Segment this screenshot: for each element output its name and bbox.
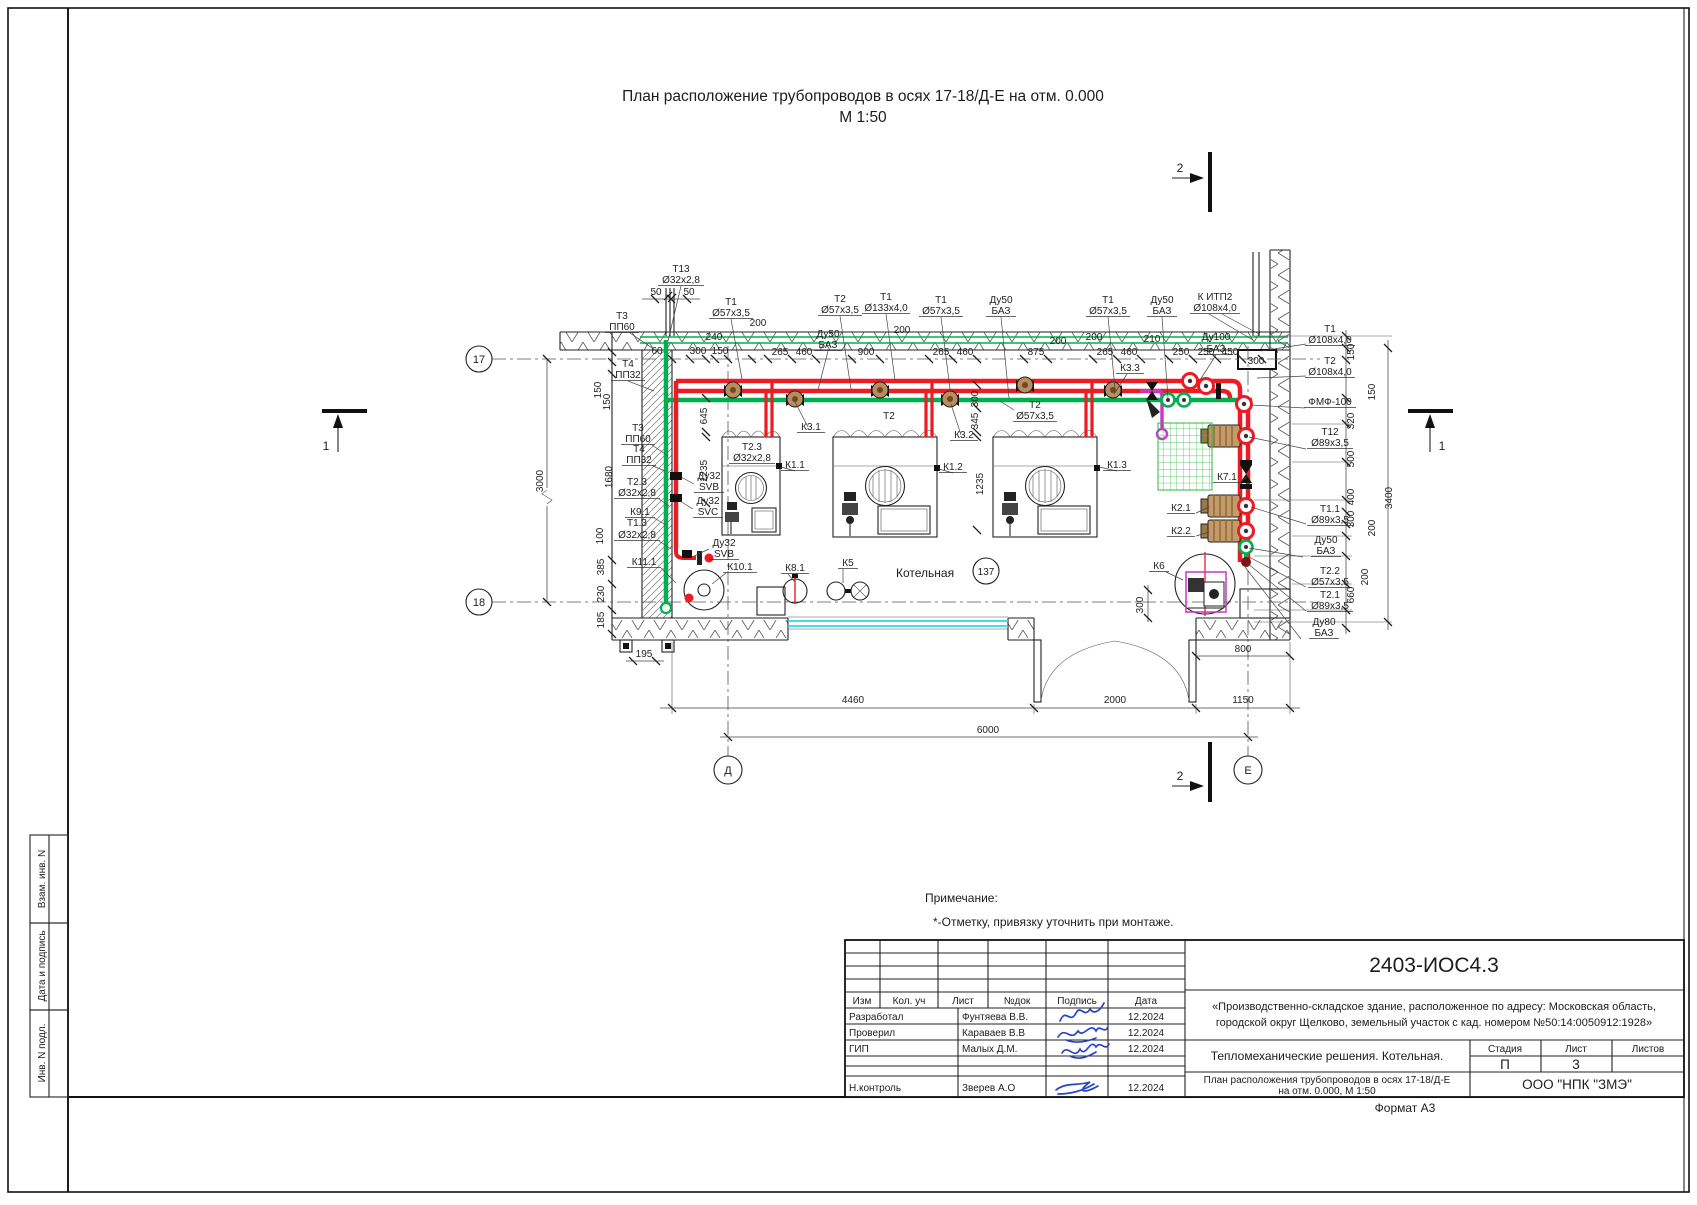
stamp-name: Караваев В.В (962, 1028, 1025, 1039)
stamp-date: 12.2024 (1128, 1028, 1165, 1039)
drawing-label: Т2 (883, 411, 895, 422)
drawing-label: Т2.3 (742, 442, 762, 453)
stamp-name: Зверев А.О (962, 1083, 1015, 1094)
drawing-label: 100 (595, 527, 606, 544)
drawing-label: Т1 (1102, 295, 1114, 306)
drawing-label: К6 (1153, 561, 1165, 572)
drawing-label: К3.2 (954, 430, 974, 441)
stamp-col: Дата (1135, 996, 1158, 1007)
drain-grate (1158, 423, 1212, 490)
drawing-label: 900 (858, 347, 875, 358)
drawing-label: К1.3 (1107, 460, 1127, 471)
drawing-label: К3.3 (1120, 363, 1140, 374)
drawing-label: Ø133х4,0 (864, 303, 908, 314)
stamp-date: 12.2024 (1128, 1044, 1165, 1055)
stamp-role: Проверил (849, 1028, 895, 1039)
stamp-col: Лист (952, 996, 974, 1007)
drawing-label: БАЗ (1153, 306, 1172, 317)
drawing-label: К2.1 (1171, 503, 1191, 514)
drawing-label: 250 (1173, 347, 1190, 358)
drawing-label: Ø108х4,0 (1193, 303, 1237, 314)
drawing-label: Т2 (1324, 356, 1336, 367)
room-number: 137 (978, 567, 995, 578)
drawing-label: 2000 (1104, 695, 1127, 706)
drawing-label: 300 (1346, 510, 1357, 527)
sidebar-label: Инв. N подл. (37, 1024, 48, 1083)
drawing-label: 1235 (699, 459, 710, 482)
stamp-name: Фунтяева В.В. (962, 1012, 1028, 1023)
drawing-label: Т1.1 (1320, 504, 1340, 515)
drawing-label: Ø89х3,5 (1311, 601, 1349, 612)
drawing-label: 320 (1346, 412, 1357, 429)
axis-bubble-17: 17 (473, 354, 485, 366)
section-label: 1 (1439, 439, 1446, 453)
drawing-label: Т2.2 (1320, 566, 1340, 577)
section-label: 2 (1177, 769, 1184, 783)
drawing-label: 300 (1248, 356, 1265, 367)
drawing-label: Т1.3 (627, 518, 647, 529)
drawing-label: 1680 (604, 465, 615, 488)
drawing-label: К10.1 (727, 562, 753, 573)
drawing-title-line2: М 1:50 (839, 109, 887, 126)
stamp-project-line1: «Производственно-складское здание, распо… (1212, 1001, 1656, 1013)
drawing-label: Ø57х3,5 (1089, 306, 1127, 317)
drawing-label: 460 (957, 347, 974, 358)
stamp-date: 12.2024 (1128, 1012, 1165, 1023)
drawing-label: 265 (1097, 347, 1114, 358)
drawing-label: SVC (698, 507, 719, 518)
drawing-label: К5 (842, 558, 854, 569)
plan-drawing: Взам. инв. N Дата и подпись Инв. N подл.… (0, 0, 1697, 1200)
drawing-label: Т4 (622, 359, 634, 370)
drawing-label: 150 (712, 346, 729, 357)
drawing-label: Ду50 (816, 329, 840, 340)
stamp-sheet-label: Лист (1565, 1044, 1587, 1055)
drawing-label: 645 (699, 407, 710, 424)
drawing-label: БАЗ (1315, 628, 1334, 639)
stamp-col: Кол. уч (893, 996, 926, 1007)
drawing-label: Ду32 (696, 496, 720, 507)
section-label: 2 (1177, 161, 1184, 175)
drawing-label: Ø57х3,5 (922, 306, 960, 317)
drawing-label: 50 (650, 287, 662, 298)
drawing-label: ФМФ-100 (1308, 397, 1352, 408)
stamp-name: Малых Д.М. (962, 1044, 1017, 1055)
stamp-date: 12.2024 (1128, 1083, 1165, 1094)
stamp-sheet-title-line2: на отм. 0.000, М 1:50 (1278, 1086, 1376, 1097)
drawing-label: Т1 (880, 292, 892, 303)
drawing-label: 265 (772, 347, 789, 358)
drawing-label: ПП32 (615, 370, 641, 381)
drawing-label: Ø32х2,8 (662, 275, 700, 286)
drawing-label: 450 (1222, 347, 1239, 358)
drawing-label: 265 (933, 347, 950, 358)
drawing-label: ПП32 (626, 455, 652, 466)
drawing-label: 200 (750, 318, 767, 329)
stamp-stage-value: П (1500, 1057, 1510, 1072)
drawing-label: Ø57х3,5 (1016, 411, 1054, 422)
drawing-label: Ø57х3,5 (1311, 577, 1349, 588)
drawing-label: К ИТП2 (1198, 292, 1233, 303)
notes-heading: Примечание: (925, 891, 998, 905)
drawing-label: Ø32х2,8 (733, 453, 771, 464)
drawing-label: Т3 (616, 311, 628, 322)
drawing-label: К9.1 (630, 507, 650, 518)
stamp-col: Подпись (1057, 996, 1097, 1007)
drawing-label: 200 (1360, 568, 1371, 585)
drawing-label: Ø32х2,8 (618, 530, 656, 541)
stamp-role: ГИП (849, 1044, 869, 1055)
drawing-label: Ø32х2,8 (618, 488, 656, 499)
drawing-label: 240 (706, 332, 723, 343)
stamp-col: №док (1004, 996, 1031, 1007)
drawing-label: 3400 (1384, 486, 1395, 509)
drawing-label: 460 (1121, 347, 1138, 358)
stamp-col: Изм (853, 996, 872, 1007)
drawing-label: 185 (596, 611, 607, 628)
drawing-label: 400 (1346, 488, 1357, 505)
drawing-label: Ø57х3,5 (712, 308, 750, 319)
drawing-label: БАЗ (819, 340, 838, 351)
drawing-label: 150 (1346, 343, 1357, 360)
drawing-label: 200 (1086, 332, 1103, 343)
drawing-label: 4460 (842, 695, 865, 706)
drawing-label: Ду50 (989, 295, 1013, 306)
drawing-label: Т2 (834, 294, 846, 305)
drawing-label: ПП60 (609, 322, 635, 333)
drawing-label: 1150 (1232, 695, 1254, 706)
drawing-label: Ø108х4,0 (1308, 367, 1352, 378)
drawing-label: К2.2 (1171, 526, 1191, 537)
drawing-label: Ø57х3,5 (821, 305, 859, 316)
drawing-label: Ду32 (712, 538, 736, 549)
drawing-label: К11.1 (632, 557, 657, 568)
drawing-label: 210 (1144, 334, 1161, 345)
drawing-label: БАЗ (992, 306, 1011, 317)
drawing-label: 300 (690, 346, 707, 357)
drawing-label: SVB (699, 482, 719, 493)
drawing-label: К7.1 (1217, 472, 1237, 483)
drawing-label: 50 (683, 287, 695, 298)
drawing-label: 6000 (977, 725, 1000, 736)
drawing-label: Т13 (672, 264, 690, 275)
stamp-role: Разработал (849, 1011, 904, 1023)
sidebar-label: Дата и подпись (37, 930, 48, 1001)
drawing-label: 875 (1028, 347, 1045, 358)
drawing-label: 345 (970, 412, 981, 429)
drawing-label: Т2.1 (1320, 590, 1340, 601)
drawing-label: 300 (1135, 596, 1146, 613)
drawing-label: 60 (651, 346, 663, 357)
drawing-label: 250 (1198, 347, 1215, 358)
pump-k21 (1201, 495, 1254, 517)
stamp-sheets-label: Листов (1632, 1044, 1665, 1055)
drawing-label: Т1 (1324, 324, 1336, 335)
drawing-label: Т3 (632, 423, 644, 434)
axis-bubble-18: 18 (473, 597, 485, 609)
format-label: Формат А3 (1375, 1101, 1436, 1115)
notes-body: *-Отметку, привязку уточнить при монтаже… (933, 915, 1173, 929)
stamp-section-title: Тепломеханические решения. Котельная. (1211, 1049, 1444, 1063)
drawing-label: 200 (1050, 336, 1067, 347)
drawing-label: 300 (970, 390, 981, 407)
drawing-label: 500 (1346, 450, 1357, 467)
drawing-label: 150 (1367, 383, 1378, 400)
stamp-stage-label: Стадия (1488, 1044, 1522, 1055)
drawing-label: 385 (596, 558, 607, 575)
stamp-project-line2: городской округ Щелково, земельный участ… (1216, 1017, 1652, 1029)
drawing-sheet: Взам. инв. N Дата и подпись Инв. N подл.… (0, 0, 1697, 1200)
drawing-label: К3.1 (801, 422, 821, 433)
drawing-label: Т1 (725, 297, 737, 308)
drawing-label: SVB (714, 549, 734, 560)
drawing-label: 150 (602, 393, 613, 410)
drawing-label: Ду50 (1314, 535, 1338, 546)
drawing-label: Ø89х3,5 (1311, 438, 1349, 449)
stamp-doc-number: 2403-ИОС4.3 (1369, 954, 1499, 977)
drawing-label: 800 (1235, 644, 1252, 655)
drawing-title-line1: План расположение трубопроводов в осях 1… (622, 88, 1104, 105)
drawing-label: Т4 (633, 444, 645, 455)
title-block: Изм Кол. уч Лист №док Подпись Дата Разра… (845, 940, 1684, 1097)
pump-k22 (1201, 520, 1254, 542)
section-label: 1 (323, 439, 330, 453)
drawing-label: К1.1 (785, 460, 805, 471)
stamp-company: ООО "НПК "ЗМЭ" (1522, 1077, 1632, 1092)
drawing-label: Ду100 (1202, 332, 1231, 343)
axis-bubble-e: Е (1244, 765, 1251, 777)
drawing-label: Т2.3 (627, 477, 647, 488)
drawing-label: Ø89х3,5 (1311, 515, 1349, 526)
stamp-sheet-value: 3 (1572, 1057, 1580, 1072)
drawing-label: 460 (796, 347, 813, 358)
drawing-label: Т2 (1029, 400, 1041, 411)
drawing-label: 195 (636, 649, 653, 660)
drawing-label: 200 (894, 325, 911, 336)
drawing-label: 230 (596, 585, 607, 602)
axis-bubble-d: Д (724, 765, 732, 777)
drawing-label: 3000 (535, 469, 546, 492)
drawing-label: К8.1 (785, 563, 805, 574)
drawing-label: Ду80 (1312, 617, 1336, 628)
drawing-label: БАЗ (1317, 546, 1336, 557)
drawing-label: Т12 (1321, 427, 1339, 438)
stamp-sheet-title-line1: План расположения трубопроводов в осях 1… (1204, 1074, 1451, 1086)
drawing-label: 1235 (975, 472, 986, 495)
sidebar-label: Взам. инв. N (37, 850, 48, 908)
stamp-role: Н.контроль (849, 1083, 901, 1094)
drawing-label: К1.2 (943, 462, 963, 473)
drawing-label: 200 (1367, 519, 1378, 536)
room-name: Котельная (896, 566, 954, 580)
drawing-label: Ду50 (1150, 295, 1174, 306)
drawing-label: Т1 (935, 295, 947, 306)
